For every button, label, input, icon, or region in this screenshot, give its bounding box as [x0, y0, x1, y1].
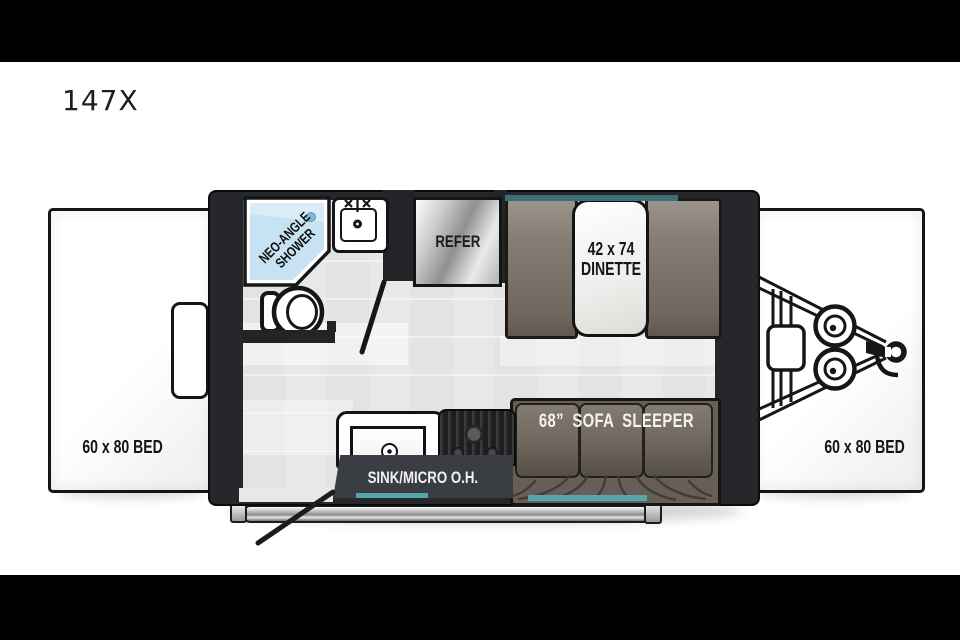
dinette-label: 42 x 74 DINETTE: [572, 240, 650, 280]
bed-latch-tab: [171, 302, 209, 399]
accent-stripe-sofa: [528, 495, 647, 501]
letterbox-top: [0, 0, 960, 62]
right-bed-label: 60 x 80 BED: [781, 437, 948, 458]
sink-micro-label: SINK/MICRO O.H.: [333, 455, 513, 498]
right-fold-out-bed: 60 x 80 BED: [752, 208, 925, 493]
refrigerator: REFER: [413, 197, 502, 287]
refer-label: REFER: [429, 232, 487, 252]
letterbox-bottom: [0, 575, 960, 640]
entry-door-opening: [239, 488, 333, 502]
rail-cap: [230, 503, 247, 523]
floor-highlight: [500, 336, 715, 366]
floor-highlight: [243, 323, 408, 365]
floorplan-page: 147X 60 x 80 BED 60 x 80 BED REFER 42 x …: [0, 0, 960, 640]
accent-stripe-top: [505, 195, 678, 201]
slide-rail: [243, 505, 650, 523]
model-title: 147X: [62, 84, 139, 117]
dinette-bench-right: [645, 198, 722, 339]
sofa-label: 68” SOFA SLEEPER: [517, 411, 709, 433]
dinette-bench-left: [505, 198, 578, 339]
left-bed-label: 60 x 80 BED: [43, 437, 203, 458]
